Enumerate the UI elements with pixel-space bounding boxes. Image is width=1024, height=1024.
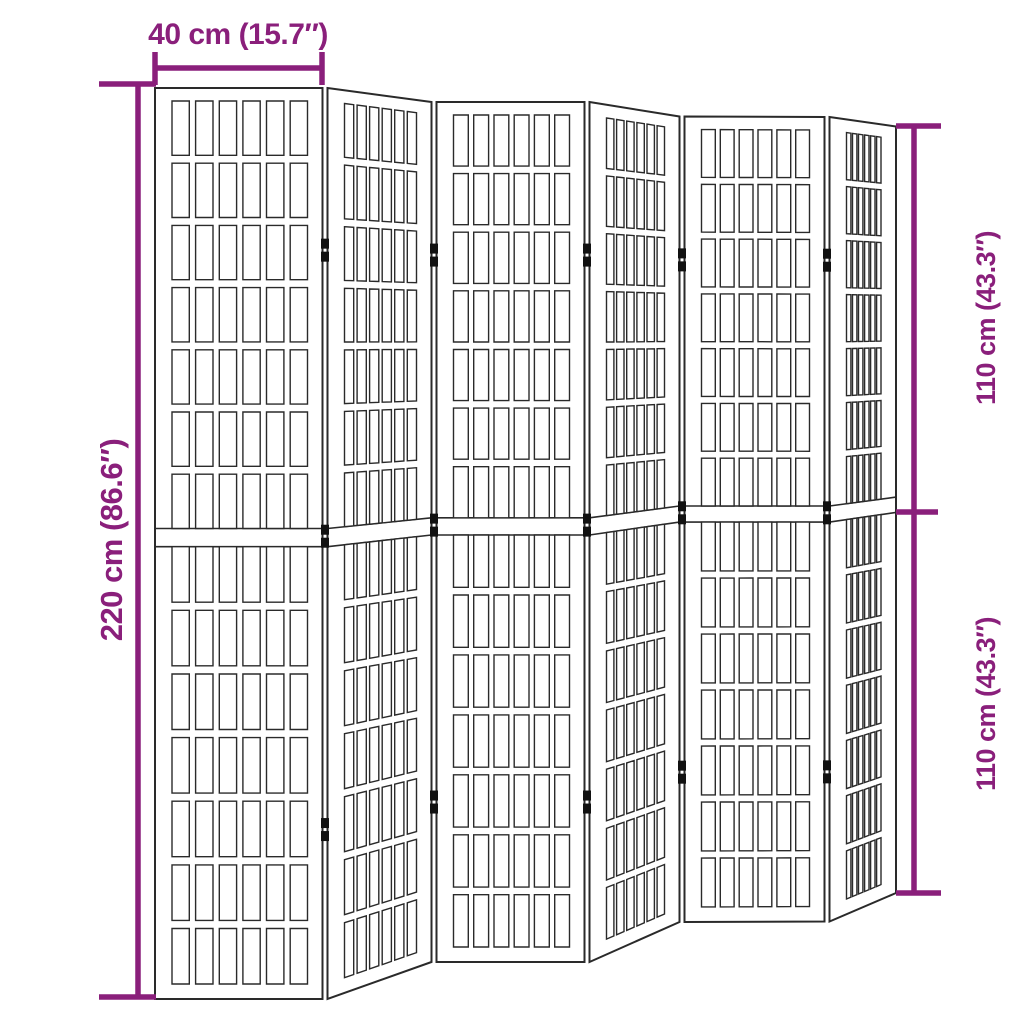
lattice-cell <box>407 839 416 895</box>
lattice-cell <box>395 110 404 163</box>
lattice-cell <box>534 291 549 342</box>
lattice-cell <box>859 188 863 235</box>
lattice-cell <box>494 655 509 707</box>
lattice-cell <box>702 634 716 683</box>
lattice-cell <box>617 292 624 342</box>
lattice-cell <box>382 785 391 841</box>
lattice-cell <box>407 409 416 461</box>
lattice-cell <box>607 176 614 227</box>
lattice-cell <box>395 409 404 462</box>
lattice-cell <box>877 515 881 563</box>
lattice-cell <box>474 895 489 947</box>
hinge-leaf <box>823 249 831 259</box>
room-divider-illustration <box>155 88 896 999</box>
lattice-cell <box>370 471 379 525</box>
lattice-cell <box>647 349 654 398</box>
lattice-cell <box>555 775 570 827</box>
lattice-cell <box>555 291 570 342</box>
lattice-cell <box>474 775 489 827</box>
hinge-leaf <box>678 761 686 771</box>
lattice-cell <box>219 865 236 921</box>
lattice-cell <box>514 895 529 947</box>
lattice-cell <box>796 239 810 287</box>
lattice-cell <box>847 456 851 504</box>
panel-frame <box>437 102 585 962</box>
lattice-cell <box>739 239 753 287</box>
lattice-cell <box>454 715 469 767</box>
lattice-cell <box>720 130 734 178</box>
lattice-cell <box>407 658 416 713</box>
lattice-cell <box>474 655 489 707</box>
lattice-cell <box>637 527 644 579</box>
lattice-cell <box>243 474 260 528</box>
lattice-cell <box>534 535 549 587</box>
lattice-cell <box>290 801 307 857</box>
lattice-cell <box>637 179 644 229</box>
lattice-cell <box>357 729 366 786</box>
lattice-cell <box>702 294 716 342</box>
lattice-cell <box>739 522 753 571</box>
lattice-cell <box>382 289 391 342</box>
lattice-cell <box>720 746 734 795</box>
lattice-cell <box>382 169 391 222</box>
lattice-cell <box>555 232 570 283</box>
lattice-cell <box>607 826 614 880</box>
lattice-cell <box>877 568 881 616</box>
lattice-cell <box>739 802 753 851</box>
lattice-cell <box>607 349 614 400</box>
lattice-cell <box>555 467 570 518</box>
lattice-cell <box>758 634 772 683</box>
lattice-cell <box>777 690 791 739</box>
lattice-cell <box>859 241 863 288</box>
lattice-cell <box>534 115 549 166</box>
lattice-cell <box>720 184 734 232</box>
lattice-cell <box>407 779 416 834</box>
lattice-cell <box>357 166 366 220</box>
lattice-cell <box>243 163 260 217</box>
lattice-cell <box>370 665 379 721</box>
lattice-cell <box>172 288 189 342</box>
lattice-cell <box>494 895 509 947</box>
lattice-cell <box>382 662 391 718</box>
lattice-cell <box>219 738 236 794</box>
lattice-cell <box>847 849 851 899</box>
lattice-cell <box>382 601 391 656</box>
lattice-cell <box>243 101 260 155</box>
lattice-cell <box>865 401 869 448</box>
lattice-cell <box>534 350 549 401</box>
lattice-cell <box>739 404 753 452</box>
lattice-cell <box>720 802 734 851</box>
lattice-cell <box>395 230 404 283</box>
lattice-cell <box>871 624 875 672</box>
lattice-cell <box>637 757 644 810</box>
lattice-cell <box>474 835 489 887</box>
lattice-cell <box>607 590 614 643</box>
dimension-section-heights: 110 cm (43.3″) 110 cm (43.3″) <box>896 126 1001 893</box>
lattice-cell <box>534 655 549 707</box>
lattice-cell <box>607 234 614 285</box>
lattice-cell <box>847 187 851 234</box>
lattice-cell <box>514 595 529 647</box>
lattice-cell <box>514 232 529 283</box>
lattice-cell <box>865 516 869 564</box>
lattice-cell <box>290 865 307 921</box>
lattice-cell <box>627 235 634 285</box>
lattice-cell <box>555 408 570 459</box>
lattice-cell <box>647 583 654 635</box>
lattice-cell <box>267 288 284 342</box>
lattice-cell <box>219 225 236 279</box>
lattice-cell <box>474 350 489 401</box>
lattice-cell <box>382 908 391 965</box>
lattice-cell <box>865 842 869 891</box>
lattice-cell <box>739 858 753 907</box>
lattice-cell <box>877 622 881 670</box>
lattice-cell <box>219 547 236 603</box>
lattice-cell <box>758 185 772 233</box>
lattice-cell <box>454 174 469 225</box>
lattice-cell <box>267 674 284 730</box>
lattice-cell <box>290 738 307 794</box>
lattice-cell <box>647 754 654 807</box>
lattice-cell <box>859 517 863 565</box>
lattice-cell <box>370 350 379 403</box>
lattice-cell <box>357 854 366 911</box>
hinge-leaf <box>678 261 686 271</box>
lattice-cell <box>494 232 509 283</box>
lattice-cell <box>474 467 489 518</box>
hinge-leaf <box>430 257 438 267</box>
lattice-cell <box>739 690 753 739</box>
lattice-cell <box>647 640 654 692</box>
lattice-cell <box>607 767 614 821</box>
lattice-cell <box>494 715 509 767</box>
lattice-cell <box>454 595 469 647</box>
lattice-cell <box>474 232 489 283</box>
lattice-cell <box>859 626 863 675</box>
lattice-cell <box>555 350 570 401</box>
lattice-cell <box>877 137 881 184</box>
lattice-cell <box>607 885 614 940</box>
lattice-cell <box>617 177 624 228</box>
lattice-cell <box>370 541 379 596</box>
lattice-cell <box>702 184 716 232</box>
lattice-cell <box>853 348 857 395</box>
upper-height-dim-label: 110 cm (43.3″) <box>971 231 1001 405</box>
lattice-cell <box>474 291 489 342</box>
lattice-cell <box>853 573 857 622</box>
lattice-cell <box>647 461 654 511</box>
lattice-cell <box>514 115 529 166</box>
lattice-cell <box>474 408 489 459</box>
lattice-cell <box>267 101 284 155</box>
lattice-cell <box>796 404 810 452</box>
lattice-cell <box>172 474 189 528</box>
lattice-cell <box>345 411 354 465</box>
lattice-cell <box>382 470 391 523</box>
hinge-leaf <box>583 257 591 267</box>
lattice-cell <box>219 474 236 528</box>
lattice-cell <box>219 674 236 730</box>
lattice-cell <box>758 458 772 506</box>
lattice-cell <box>290 101 307 155</box>
lattice-cell <box>627 529 634 581</box>
hinge-leaf <box>823 773 831 783</box>
lattice-cell <box>758 746 772 795</box>
lattice-cell <box>796 294 810 342</box>
lattice-cell <box>647 697 654 749</box>
lattice-cell <box>758 349 772 397</box>
lattice-cell <box>847 349 851 396</box>
lattice-cell <box>657 126 664 176</box>
lattice-cell <box>407 537 416 591</box>
lattice-cell <box>196 288 213 342</box>
lattice-cell <box>514 775 529 827</box>
lattice-cell <box>627 877 634 931</box>
lattice-cell <box>758 858 772 907</box>
lattice-cell <box>739 746 753 795</box>
lattice-cell <box>267 163 284 217</box>
lattice-cell <box>474 715 489 767</box>
lattice-cell <box>627 178 634 228</box>
lattice-cell <box>370 726 379 782</box>
lattice-cell <box>454 115 469 166</box>
lattice-cell <box>657 865 664 918</box>
lattice-cell <box>859 681 863 730</box>
lattice-cell <box>196 738 213 794</box>
lattice-cell <box>637 292 644 341</box>
lattice-cell <box>196 225 213 279</box>
lattice-cell <box>720 634 734 683</box>
lattice-cell <box>871 295 875 341</box>
lattice-cell <box>877 676 881 724</box>
lattice-cell <box>395 660 404 715</box>
hinge-leaf <box>321 239 329 249</box>
lattice-cell <box>702 802 716 851</box>
lattice-cell <box>702 578 716 627</box>
width-dim-label: 40 cm (15.7″) <box>148 18 328 51</box>
lattice-cell <box>370 168 379 222</box>
lattice-cell <box>637 642 644 694</box>
lattice-cell <box>877 838 881 887</box>
lattice-cell <box>637 462 644 512</box>
lattice-cell <box>865 242 869 289</box>
lattice-cell <box>859 736 863 785</box>
lattice-cell <box>617 647 624 700</box>
lattice-cell <box>267 610 284 666</box>
lattice-cell <box>219 801 236 857</box>
lattice-cell <box>657 404 664 453</box>
lattice-cell <box>647 526 654 577</box>
lattice-cell <box>865 788 869 837</box>
total-height-dim-label: 220 cm (86.6″) <box>94 439 129 642</box>
lattice-cell <box>777 185 791 233</box>
hinge-leaf <box>430 514 438 524</box>
lower-height-dim-label: 110 cm (43.3″) <box>971 617 1001 791</box>
lattice-cell <box>871 786 875 835</box>
lattice-cell <box>382 410 391 463</box>
lattice-cell <box>853 402 857 449</box>
lattice-cell <box>853 518 857 567</box>
lattice-cell <box>172 101 189 155</box>
lattice-cell <box>395 469 404 522</box>
lattice-cell <box>345 227 354 281</box>
lattice-cell <box>395 721 404 776</box>
lattice-cell <box>647 405 654 455</box>
lattice-cell <box>395 350 404 402</box>
lattice-cell <box>871 678 875 727</box>
lattice-cell <box>637 700 644 753</box>
lattice-cell <box>777 458 791 506</box>
lattice-cell <box>702 858 716 907</box>
lattice-cell <box>657 808 664 860</box>
lattice-cell <box>647 869 654 922</box>
lattice-cell <box>196 801 213 857</box>
lattice-cell <box>243 225 260 279</box>
lattice-cell <box>607 407 614 458</box>
lattice-cell <box>454 232 469 283</box>
lattice-cell <box>720 294 734 342</box>
lattice-cell <box>702 239 716 287</box>
lattice-cell <box>555 535 570 587</box>
lattice-cell <box>454 408 469 459</box>
lattice-cell <box>382 229 391 282</box>
lattice-cell <box>847 739 851 789</box>
lattice-cell <box>357 411 366 465</box>
lattice-cell <box>382 724 391 780</box>
lattice-cell <box>739 634 753 683</box>
lattice-cell <box>243 801 260 857</box>
lattice-cell <box>172 674 189 730</box>
lattice-cell <box>290 610 307 666</box>
lattice-cell <box>454 291 469 342</box>
lattice-cell <box>847 402 851 449</box>
lattice-cell <box>865 295 869 342</box>
lattice-cell <box>534 467 549 518</box>
lattice-cell <box>357 542 366 598</box>
lattice-cell <box>494 467 509 518</box>
lattice-cell <box>627 292 634 342</box>
lattice-cell <box>454 467 469 518</box>
lattice-cell <box>172 163 189 217</box>
hinge-leaf <box>430 527 438 537</box>
lattice-cell <box>871 570 875 618</box>
lattice-cell <box>454 775 469 827</box>
lattice-cell <box>514 408 529 459</box>
lattice-cell <box>657 524 664 575</box>
lattice-cell <box>243 738 260 794</box>
lattice-cell <box>617 705 624 758</box>
lattice-cell <box>345 288 354 342</box>
lattice-cell <box>357 289 366 342</box>
lattice-cell <box>796 690 810 739</box>
lattice-cell <box>627 406 634 456</box>
lattice-cell <box>847 629 851 678</box>
lattice-cell <box>454 895 469 947</box>
lattice-cell <box>243 674 260 730</box>
lattice-cell <box>196 350 213 404</box>
lattice-cell <box>290 412 307 466</box>
lattice-cell <box>196 474 213 528</box>
lattice-cell <box>758 802 772 851</box>
lattice-cell <box>395 538 404 593</box>
lattice-cell <box>454 350 469 401</box>
lattice-cell <box>534 715 549 767</box>
lattice-cell <box>607 292 614 342</box>
lattice-cell <box>345 606 354 662</box>
lattice-cell <box>796 458 810 506</box>
lattice-cell <box>853 133 857 180</box>
lattice-cell <box>407 900 416 956</box>
lattice-cell <box>853 628 857 677</box>
lattice-cell <box>534 408 549 459</box>
hinge-leaf <box>430 791 438 801</box>
lattice-cell <box>474 535 489 587</box>
lattice-cell <box>796 522 810 571</box>
lattice-cell <box>172 610 189 666</box>
hinge-leaf <box>321 831 329 841</box>
lattice-cell <box>657 181 664 230</box>
lattice-cell <box>555 715 570 767</box>
lattice-cell <box>627 645 634 698</box>
lattice-cell <box>219 163 236 217</box>
lattice-cell <box>877 784 881 833</box>
lattice-cell <box>196 929 213 985</box>
lattice-cell <box>859 845 863 894</box>
product-image: 40 cm (15.7″) 220 cm (86.6″) 110 cm (43.… <box>0 0 1024 1024</box>
lattice-cell <box>345 165 354 219</box>
lattice-cell <box>514 655 529 707</box>
lattice-cell <box>627 349 634 399</box>
lattice-cell <box>720 578 734 627</box>
lattice-cell <box>267 412 284 466</box>
lattice-cell <box>720 349 734 397</box>
lattice-cell <box>627 761 634 814</box>
lattice-cell <box>859 455 863 502</box>
lattice-cell <box>796 185 810 233</box>
lattice-cell <box>474 115 489 166</box>
lattice-cell <box>514 535 529 587</box>
dimension-diagram: 40 cm (15.7″) 220 cm (86.6″) 110 cm (43.… <box>0 0 1024 1024</box>
lattice-cell <box>637 349 644 399</box>
lattice-cell <box>859 348 863 395</box>
lattice-cell <box>514 467 529 518</box>
lattice-cell <box>514 174 529 225</box>
panel-1 <box>155 88 323 999</box>
lattice-cell <box>877 189 881 235</box>
lattice-cell <box>657 638 664 689</box>
lattice-cell <box>267 738 284 794</box>
lattice-cell <box>647 811 654 864</box>
hinge-leaf <box>678 514 686 524</box>
lattice-cell <box>871 401 875 448</box>
lattice-cell <box>196 610 213 666</box>
lattice-cell <box>720 858 734 907</box>
lattice-cell <box>871 840 875 889</box>
lattice-cell <box>637 405 644 455</box>
lattice-cell <box>777 746 791 795</box>
lattice-cell <box>267 865 284 921</box>
lattice-cell <box>627 121 634 172</box>
lattice-cell <box>720 239 734 287</box>
lattice-cell <box>871 348 875 394</box>
lattice-cell <box>407 231 416 283</box>
lattice-cell <box>617 589 624 642</box>
lattice-cell <box>647 180 654 230</box>
lattice-cell <box>865 188 869 235</box>
